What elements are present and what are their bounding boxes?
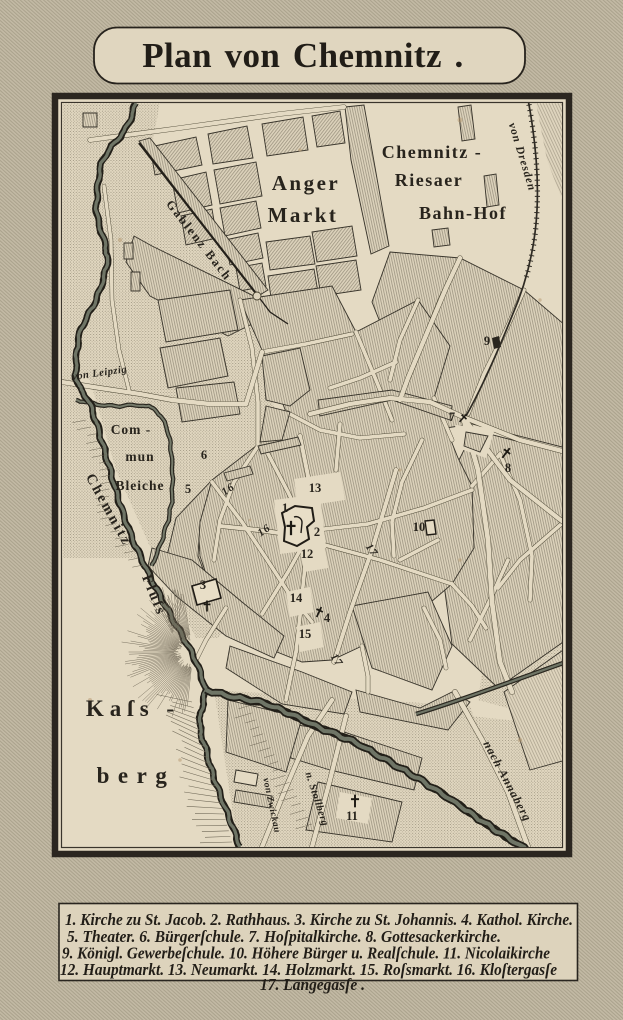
svg-text:3: 3 [200, 578, 206, 592]
svg-text:mun: mun [125, 449, 154, 464]
svg-text:Plan von Chemnitz .: Plan von Chemnitz . [142, 36, 463, 75]
svg-text:Kaſs -: Kaſs - [86, 696, 180, 721]
svg-text:17. Langegasſe .: 17. Langegasſe . [260, 975, 365, 994]
svg-text:9: 9 [484, 334, 490, 348]
svg-text:4: 4 [324, 611, 331, 625]
svg-text:Bahn-Hof: Bahn-Hof [419, 203, 507, 223]
svg-text:berg: berg [97, 763, 176, 788]
svg-text:13: 13 [309, 481, 322, 495]
svg-text:5: 5 [185, 482, 191, 496]
svg-text:1: 1 [282, 501, 288, 515]
svg-text:Riesaer: Riesaer [395, 170, 463, 190]
svg-text:14: 14 [290, 591, 303, 605]
svg-text:6: 6 [201, 448, 207, 462]
svg-text:Bleiche: Bleiche [116, 478, 165, 493]
svg-text:8: 8 [505, 461, 511, 475]
svg-text:10: 10 [413, 520, 426, 534]
svg-text:7: 7 [449, 410, 455, 424]
svg-text:Anger: Anger [272, 171, 341, 195]
svg-text:Markt: Markt [268, 203, 339, 227]
svg-text:15: 15 [299, 627, 312, 641]
svg-text:Com -: Com - [111, 422, 152, 437]
svg-text:2: 2 [314, 525, 320, 539]
svg-text:Chemnitz -: Chemnitz - [382, 142, 482, 162]
svg-text:11: 11 [346, 809, 358, 823]
svg-text:12: 12 [301, 547, 314, 561]
